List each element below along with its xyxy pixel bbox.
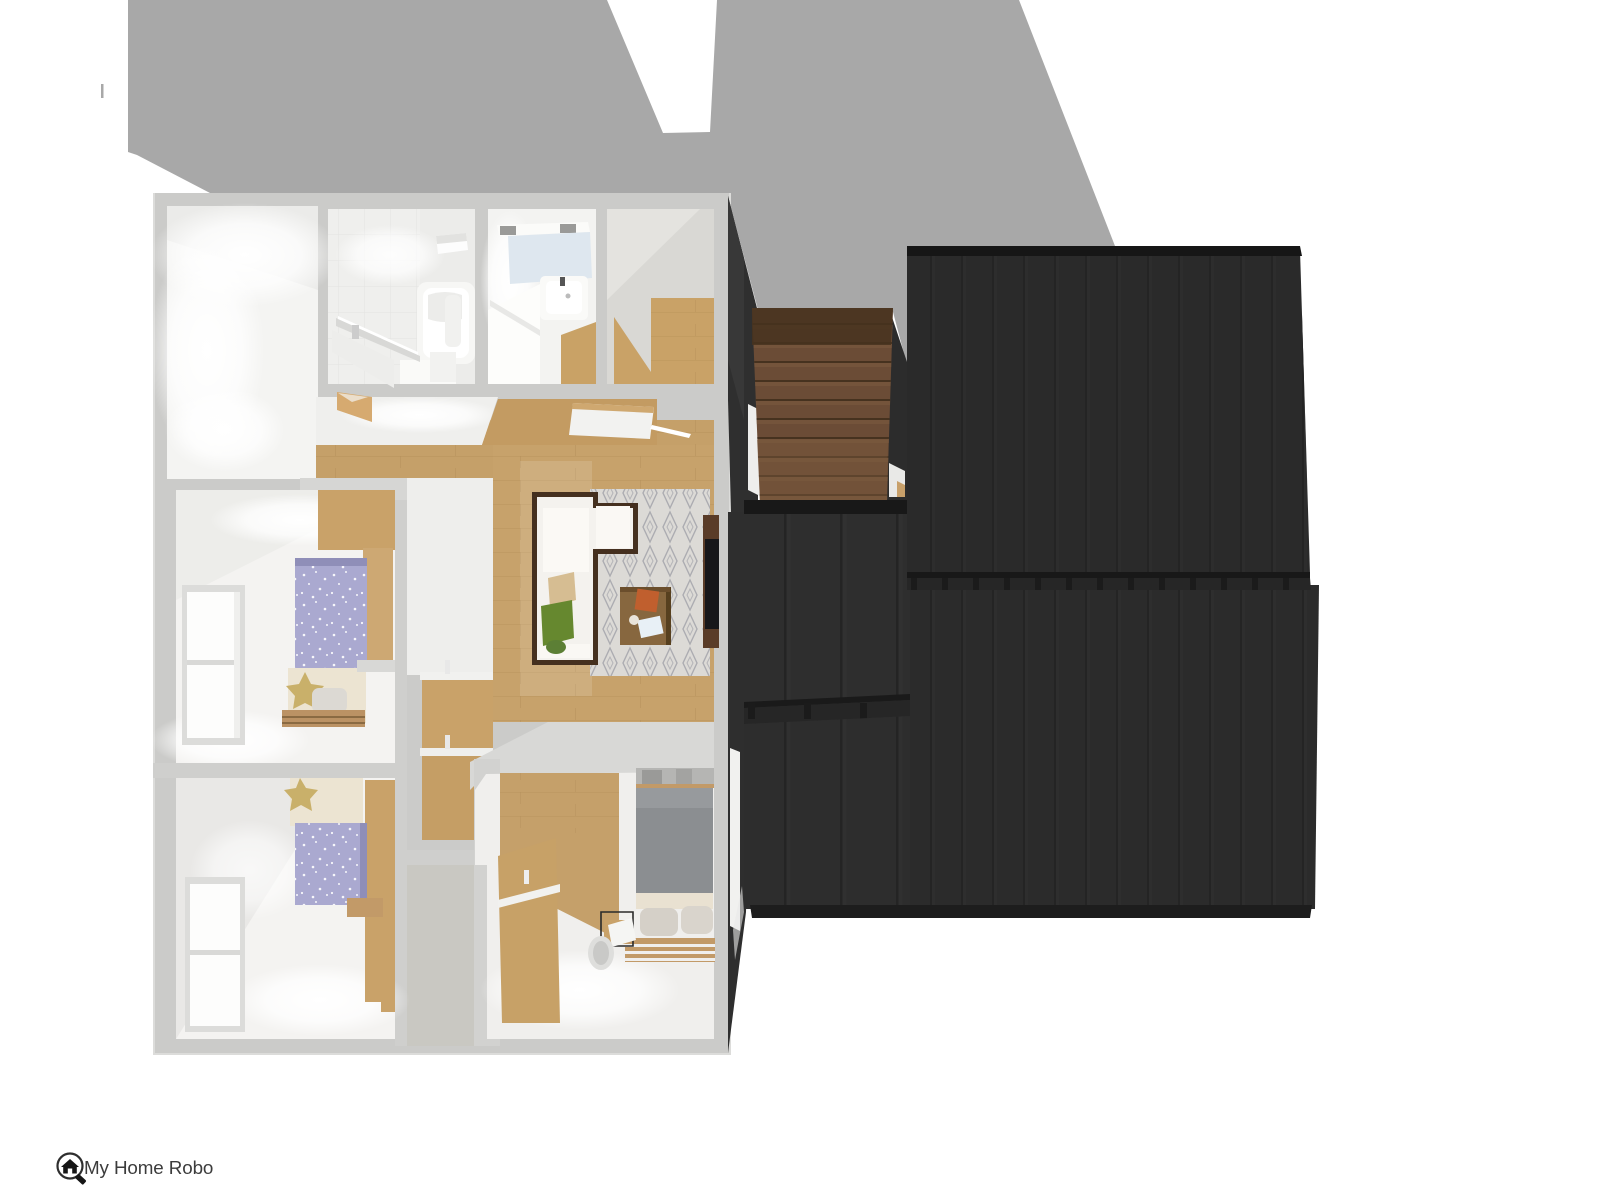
svg-text:My Home Robo: My Home Robo xyxy=(84,1157,213,1178)
